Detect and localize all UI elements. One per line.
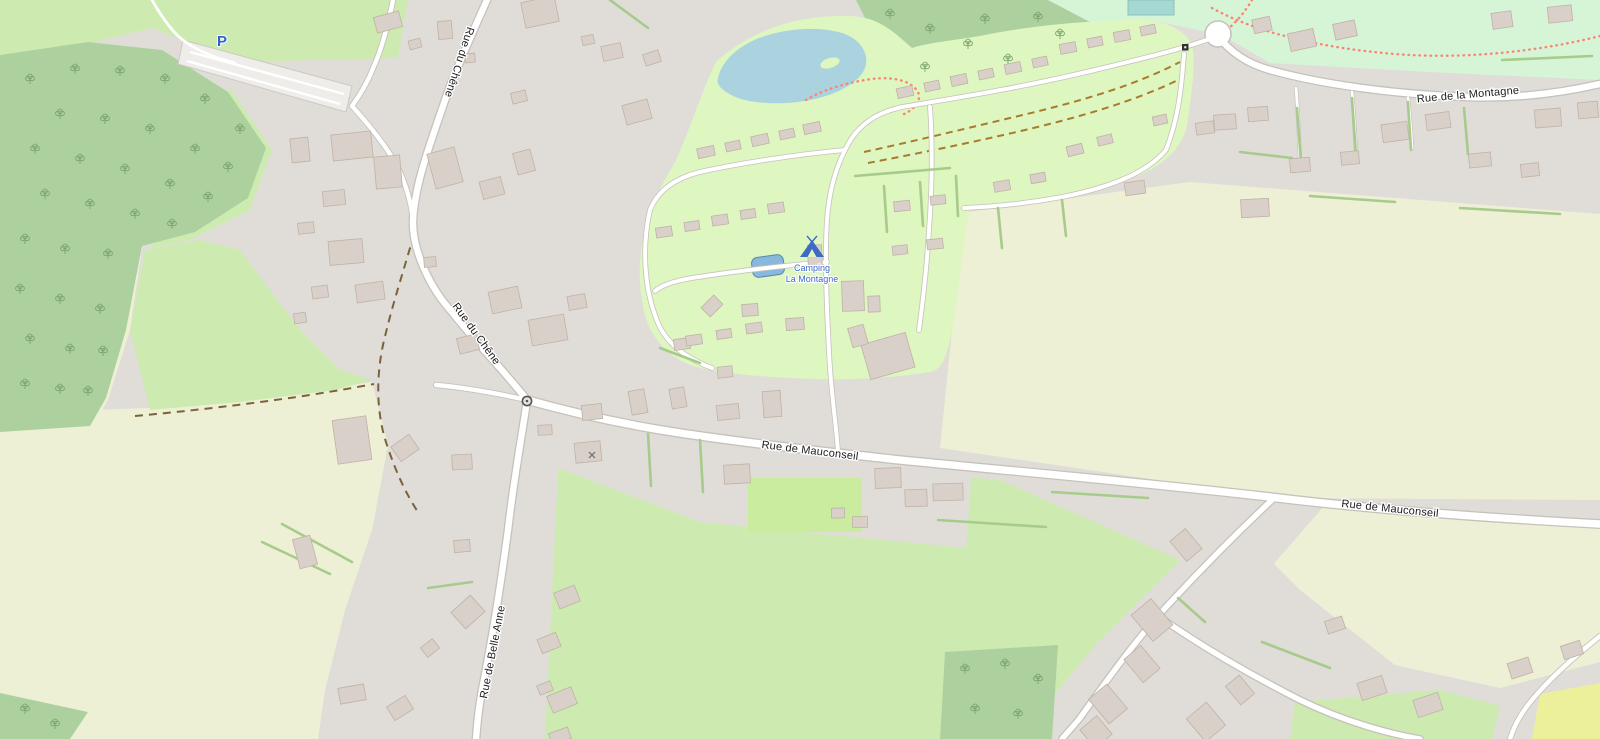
- building: [1248, 106, 1269, 121]
- building: [927, 238, 944, 250]
- building: [655, 226, 672, 238]
- building: [311, 285, 329, 299]
- camping-label-line2: La Montagne: [786, 274, 839, 284]
- building: [1289, 157, 1310, 173]
- grass-patch: [748, 478, 862, 532]
- building: [767, 202, 784, 214]
- camping-label-line1: Camping: [794, 263, 830, 273]
- map-svg: P Rue du Chêne Rue du Chêne Rue de Belle…: [0, 0, 1600, 739]
- building: [424, 256, 437, 267]
- building: [684, 221, 700, 232]
- map-canvas[interactable]: P Rue du Chêne Rue du Chêne Rue de Belle…: [0, 0, 1600, 739]
- building: [1195, 121, 1214, 135]
- building: [716, 403, 739, 420]
- building: [1547, 5, 1573, 23]
- building: [328, 239, 364, 266]
- building: [742, 303, 759, 316]
- building: [875, 468, 902, 489]
- swimming-pool: [1128, 0, 1174, 15]
- building: [437, 20, 453, 39]
- building: [452, 454, 473, 470]
- landuse-layer: [0, 0, 1600, 739]
- forest-area: [940, 645, 1058, 739]
- building: [1425, 111, 1451, 130]
- building: [322, 189, 345, 206]
- building: [933, 483, 964, 501]
- gate-icon: [522, 396, 531, 405]
- building: [892, 245, 908, 256]
- building: [581, 34, 595, 45]
- building: [930, 195, 946, 206]
- building: [331, 131, 373, 161]
- building: [1124, 180, 1146, 196]
- building: [745, 322, 762, 334]
- building: [724, 464, 751, 484]
- barrier-icon: [1182, 44, 1189, 51]
- building: [1534, 108, 1561, 128]
- building: [1491, 11, 1513, 30]
- building: [786, 317, 805, 330]
- building: [332, 416, 372, 464]
- building: [894, 200, 911, 212]
- building: [711, 214, 728, 226]
- building: [669, 387, 687, 409]
- building: [905, 489, 928, 507]
- building: [355, 281, 385, 303]
- building: [685, 334, 702, 346]
- building: [293, 312, 306, 324]
- building: [841, 281, 864, 312]
- building: [297, 222, 314, 235]
- building: [717, 366, 733, 379]
- building: [1381, 121, 1409, 142]
- building: [1468, 152, 1491, 168]
- building: [1241, 198, 1270, 217]
- building: [567, 294, 587, 311]
- building: [538, 425, 553, 436]
- building: [762, 390, 782, 417]
- building: [574, 441, 602, 464]
- building: [716, 329, 732, 340]
- farmland-area: [940, 182, 1600, 500]
- building: [740, 209, 756, 220]
- building: [831, 508, 844, 518]
- building: [1340, 151, 1359, 166]
- building: [290, 137, 310, 163]
- building: [852, 516, 867, 528]
- building: [374, 155, 403, 189]
- building: [454, 539, 471, 552]
- building: [581, 403, 602, 420]
- parking-icon: P: [217, 33, 227, 50]
- building: [1577, 101, 1598, 119]
- building: [868, 296, 881, 312]
- building: [1520, 163, 1539, 178]
- building: [1214, 114, 1237, 130]
